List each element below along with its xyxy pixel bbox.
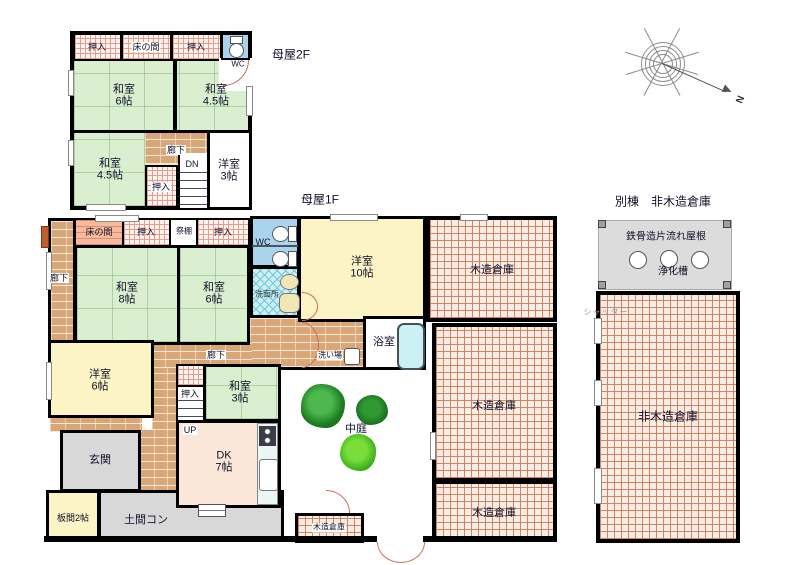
septic-tank-icon: [660, 250, 678, 268]
room-label: 洋室 6帖: [89, 369, 111, 394]
window: [460, 214, 488, 221]
washing-area-icon: [344, 348, 360, 365]
window: [68, 70, 74, 96]
room-label: 押入: [137, 227, 155, 237]
room-label: 押入: [88, 42, 106, 52]
room-label: 洗い場: [317, 352, 343, 361]
septic-tank-label: 浄化槽: [658, 266, 688, 277]
room-label: 木造倉庫: [472, 400, 516, 412]
room-label: 和室 3帖: [229, 381, 251, 406]
window: [68, 140, 74, 166]
tree-icon: [340, 434, 376, 471]
room-label: DK 7帖: [215, 450, 232, 475]
floor1-corridor-mid-vertical: [152, 368, 179, 494]
room-label: 土間コン: [124, 514, 168, 526]
stairs-down: [180, 172, 209, 208]
room-label: 押入: [180, 389, 200, 399]
window: [246, 86, 253, 116]
north-arrow-head: [722, 85, 733, 96]
toilet-tank-icon: [288, 251, 297, 267]
floor1-title: 母屋1F: [301, 193, 339, 206]
sink-icon: [280, 274, 299, 290]
room-label: 洋室 10帖: [350, 256, 373, 281]
floor1-corridor-entry: [139, 430, 155, 494]
room-label: 中庭: [345, 423, 367, 435]
entrance-step: [198, 504, 226, 517]
wall-segment: [70, 130, 252, 133]
room-label: 洗面所: [255, 291, 279, 300]
boundary-wall: [423, 536, 557, 542]
room-label: 和室 8帖: [116, 282, 138, 307]
tree-icon: [356, 395, 388, 425]
floor2-title: 母屋2F: [272, 48, 310, 61]
toilet-bowl-icon: [272, 251, 289, 267]
toilet-icon: [272, 249, 297, 267]
boundary-wall: [44, 536, 377, 542]
room-label: 床の間: [131, 42, 160, 52]
room-label: 和室 6帖: [203, 282, 225, 307]
room-label: 玄関: [89, 454, 111, 466]
toilet-icon: [228, 36, 243, 57]
floor1-closet-stairs: [176, 364, 205, 387]
roof-post: [723, 281, 731, 289]
bathtub-icon: [397, 323, 425, 370]
room-label: 床の間: [85, 227, 112, 237]
roof-post: [598, 220, 606, 228]
room-label: 浴室: [372, 336, 396, 348]
septic-tank-icon: [691, 251, 709, 269]
roof-post: [723, 220, 731, 228]
wall-segment: [173, 59, 177, 133]
room-label: 板間2帖: [57, 513, 89, 523]
room-label: DN: [185, 159, 200, 169]
kitchen-sink-icon: [259, 459, 278, 491]
room-label: 押入: [151, 182, 171, 192]
door-arc: [326, 490, 350, 513]
shutter-label: シャッター: [584, 309, 629, 318]
toilet-icon: [272, 224, 297, 242]
gate-arc: [377, 542, 401, 563]
gate-arc: [401, 542, 425, 563]
room-label: WC: [256, 237, 271, 247]
room-label: 祭棚: [176, 228, 192, 237]
window: [46, 362, 52, 400]
room-label: UP: [183, 425, 198, 435]
window: [86, 204, 126, 211]
roof-post: [598, 281, 606, 289]
shutter-opening: [594, 318, 602, 344]
tree-icon: [301, 384, 345, 428]
toilet-bowl-icon: [229, 43, 244, 58]
wall-post: [41, 226, 49, 248]
window: [95, 215, 139, 222]
annex-roof-label: 鉄骨造片流れ屋根: [626, 231, 706, 242]
septic-tank-icon: [629, 251, 647, 269]
north-label: N: [732, 94, 745, 105]
room-label: WC: [230, 61, 245, 70]
sink-icon: [279, 293, 300, 313]
room-label: 押入: [214, 227, 232, 237]
window: [46, 252, 52, 290]
shutter-opening: [594, 468, 602, 504]
shutter-opening: [594, 380, 602, 406]
room-label: 廊下: [206, 350, 226, 360]
room-label: 廊下: [166, 145, 186, 155]
room-label: 木造倉庫: [472, 507, 516, 519]
room-label: 非木造倉庫: [638, 410, 698, 423]
room-label: 押入: [187, 42, 205, 52]
toilet-tank-icon: [288, 226, 297, 242]
toilet-bowl-icon: [272, 226, 289, 242]
window: [330, 214, 378, 221]
room-label: 木造倉庫: [312, 524, 346, 533]
room-label: 洋室 3帖: [218, 159, 240, 184]
stove-icon: [259, 426, 276, 446]
room-label: 廊下: [49, 273, 69, 283]
floor-plan-page: 押入 床の間 押入 WC 和室 6帖 和室 4.5帖 廊下 DN 押入 和室 4…: [0, 0, 800, 565]
room-label: 木造倉庫: [470, 264, 514, 276]
room-label: 和室 4.5帖: [203, 84, 229, 109]
window: [430, 432, 436, 460]
annex-title: 別棟 非木造倉庫: [615, 195, 711, 208]
room-label: 和室 4.5帖: [97, 158, 123, 183]
room-label: 和室 6帖: [113, 84, 135, 109]
